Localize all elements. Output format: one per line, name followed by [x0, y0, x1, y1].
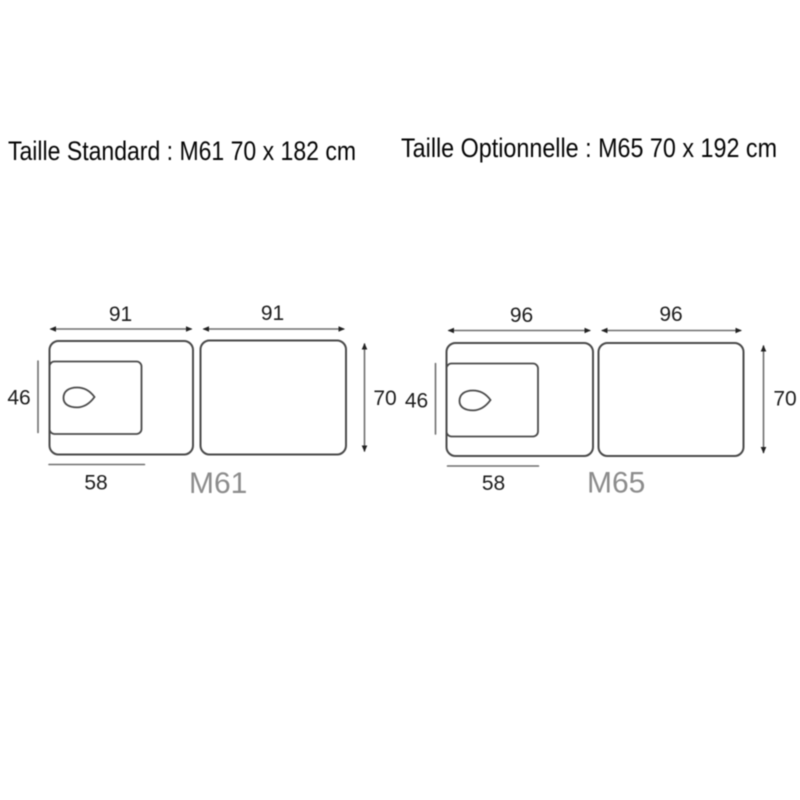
- svg-text:46: 46: [7, 387, 30, 410]
- svg-text:58: 58: [482, 472, 505, 495]
- svg-text:70: 70: [373, 387, 396, 410]
- svg-text:58: 58: [84, 472, 107, 495]
- svg-text:M65: M65: [587, 467, 645, 500]
- svg-text:96: 96: [510, 304, 533, 327]
- svg-text:96: 96: [659, 303, 682, 326]
- svg-text:91: 91: [261, 302, 284, 325]
- svg-text:46: 46: [405, 390, 428, 413]
- svg-text:Taille Optionnelle : M65 70 x: Taille Optionnelle : M65 70 x 192 cm: [401, 133, 777, 163]
- svg-text:M61: M61: [189, 467, 247, 500]
- svg-text:Taille Standard : M61 70 x 182: Taille Standard : M61 70 x 182 cm: [8, 136, 356, 166]
- svg-text:91: 91: [109, 303, 132, 326]
- svg-text:70: 70: [773, 388, 796, 411]
